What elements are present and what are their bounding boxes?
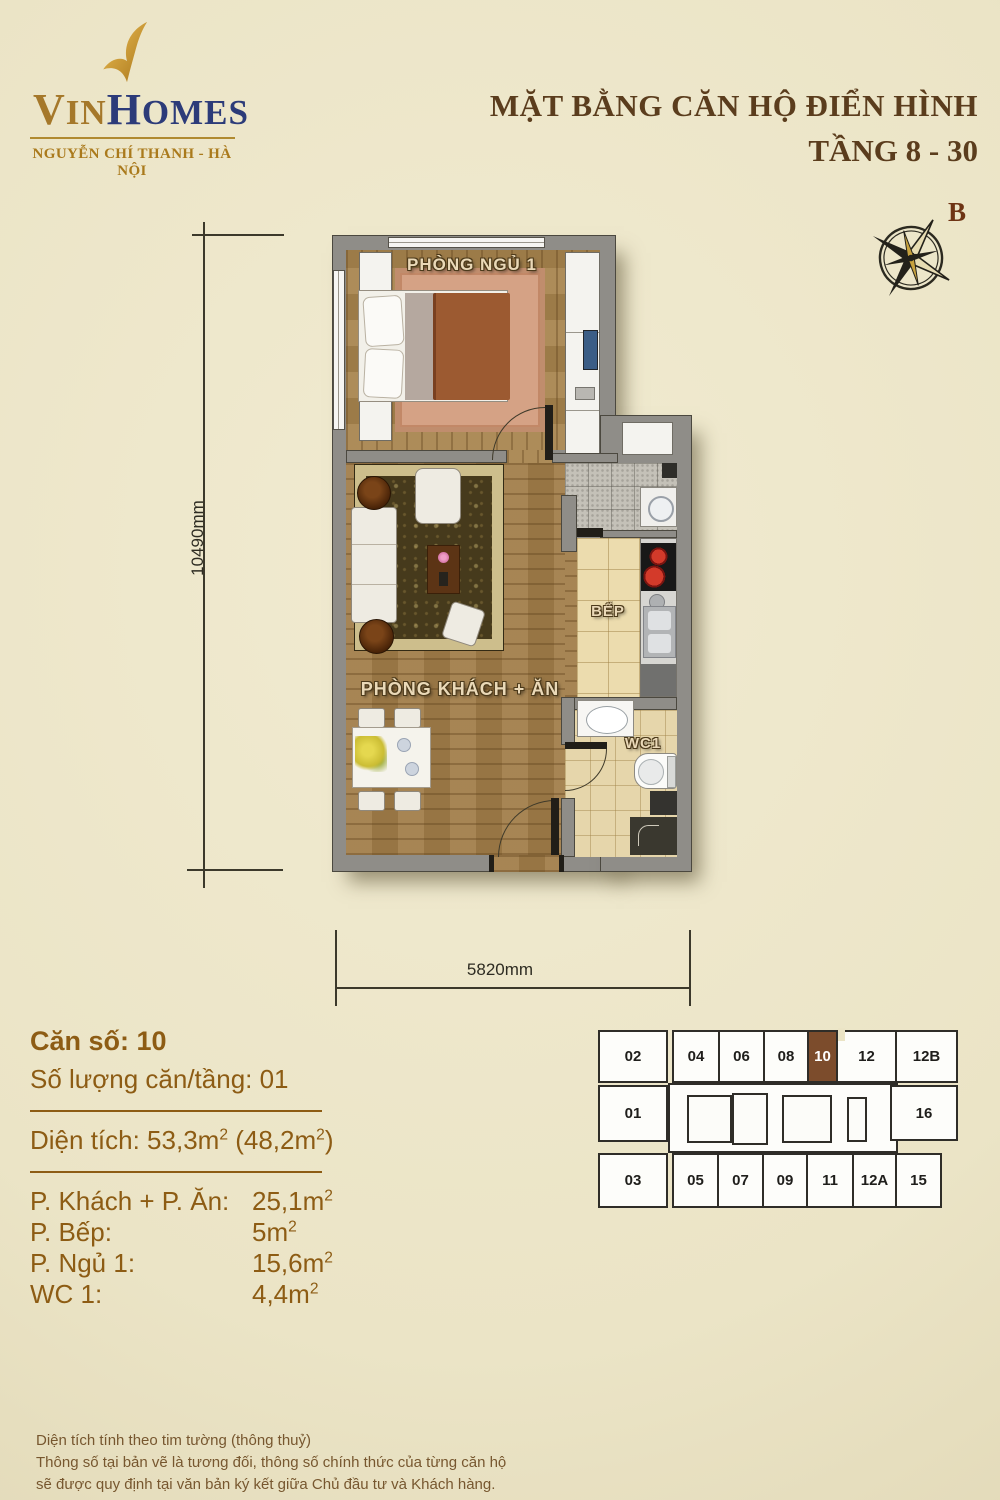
room-area-row: P. Khách + P. Ăn: 25,1m2 — [30, 1186, 340, 1217]
sink-basin — [648, 634, 671, 653]
divider — [30, 1110, 322, 1112]
floor-key-plan: 02 04 06 08 10 12 12B 01 16 03 05 07 09 … — [598, 1028, 960, 1210]
utility-fixture — [662, 463, 677, 478]
room-area-value: 15,6m2 — [252, 1248, 333, 1279]
dining-chair — [394, 791, 421, 811]
dimension-tick — [335, 930, 337, 1006]
room-area-label: P. Khách + P. Ăn: — [30, 1186, 229, 1216]
toilet-tank — [667, 756, 676, 788]
brand-wordmark: VINHOMES — [26, 84, 256, 135]
dining-chair — [358, 708, 385, 728]
kitchen-door — [577, 528, 603, 537]
brand-bird-icon — [95, 20, 159, 84]
keyplan-unit-12B: 12B — [895, 1030, 958, 1083]
disclaimer: Diện tích tính theo tim tường (thông thu… — [36, 1430, 656, 1495]
room-area-row: P. Bếp: 5m2 — [30, 1217, 340, 1248]
entry-door — [551, 798, 559, 855]
value-sup: 2 — [310, 1280, 319, 1297]
brand-part: V — [33, 85, 66, 134]
brand-part: OMES — [142, 93, 249, 132]
disclaimer-line: Diện tích tính theo tim tường (thông thu… — [36, 1430, 656, 1452]
compass-icon — [863, 210, 959, 306]
remote — [439, 572, 448, 586]
pillow — [362, 295, 404, 348]
wc-cabinet — [650, 791, 677, 815]
elevator-core — [847, 1097, 867, 1142]
wall — [600, 530, 677, 538]
brand-tagline: NGUYỄN CHÍ THANH - HÀ NỘI — [18, 146, 246, 180]
title-line-2: TẦNG 8 - 30 — [458, 133, 978, 169]
room-label-bedroom: PHÒNG NGỦ 1 — [392, 255, 552, 275]
value-text: 15,6m — [252, 1248, 324, 1278]
keyplan-notch — [838, 1028, 845, 1041]
washer-drum — [648, 496, 674, 522]
elevator-core — [732, 1093, 768, 1145]
keyplan-unit-12: 12 — [836, 1030, 897, 1083]
wall — [552, 453, 618, 463]
brand-part: IN — [66, 93, 107, 132]
sofa — [351, 507, 397, 623]
dimension-label-width: 5820mm — [420, 960, 580, 980]
keyplan-unit-01: 01 — [598, 1085, 668, 1142]
wall — [346, 450, 507, 463]
keyplan-unit-06: 06 — [718, 1030, 765, 1083]
disclaimer-line: sẽ được quy định tại văn bản ký kết giữa… — [36, 1474, 656, 1496]
units-per-floor: Số lượng căn/tầng: 01 — [30, 1064, 340, 1095]
door-jamb — [489, 855, 494, 872]
dimension-tick — [689, 930, 691, 1006]
value-sup: 2 — [324, 1249, 333, 1266]
elevator-core — [687, 1095, 732, 1143]
toilet-bowl — [638, 759, 664, 785]
dining-chair — [358, 791, 385, 811]
wall — [561, 495, 577, 552]
shower-hose-icon — [638, 825, 659, 846]
page-title: MẶT BẰNG CĂN HỘ ĐIỂN HÌNH TẦNG 8 - 30 — [458, 88, 978, 169]
brand-part: H — [107, 85, 142, 134]
room-area-value: 4,4m2 — [252, 1279, 319, 1310]
room-area-value: 5m2 — [252, 1217, 297, 1248]
value-text: 5m — [252, 1217, 288, 1247]
area-text: (48,2m — [228, 1125, 316, 1155]
window — [333, 270, 345, 430]
area-text: ) — [325, 1125, 334, 1155]
value-text: 25,1m — [252, 1186, 324, 1216]
kitchen-opening — [565, 552, 577, 697]
flyer-page: VINHOMES NGUYỄN CHÍ THANH - HÀ NỘI MẶT B… — [0, 0, 1000, 1500]
keyplan-unit-08: 08 — [763, 1030, 809, 1083]
flower-decor — [438, 552, 449, 563]
brand-divider — [30, 137, 235, 139]
flower-decor — [355, 736, 387, 772]
keyplan-unit-09: 09 — [762, 1153, 808, 1208]
toilet — [634, 753, 677, 789]
keyplan-unit-10-highlighted: 10 — [807, 1030, 838, 1083]
coffee-table — [427, 545, 460, 594]
unit-info: Căn số: 10 Số lượng căn/tầng: 01 Diện tí… — [30, 1026, 340, 1310]
sink-basin — [648, 611, 671, 630]
keyplan-unit-11: 11 — [806, 1153, 854, 1208]
kitchen-cabinet — [641, 664, 676, 696]
washing-machine — [640, 487, 677, 527]
wc-sink — [586, 706, 628, 734]
side-table — [357, 476, 391, 510]
plate — [405, 762, 419, 776]
wc-vanity — [577, 700, 634, 737]
kitchen-sink — [643, 606, 676, 658]
room-area-label: P. Ngủ 1: — [30, 1248, 135, 1278]
dimension-line-horizontal — [336, 987, 690, 989]
room-label-kitchen: BẾP — [578, 603, 638, 620]
room-area-row: P. Ngủ 1: 15,6m2 — [30, 1248, 340, 1279]
room-label-wc: WC1 — [612, 735, 674, 752]
value-sup: 2 — [324, 1187, 333, 1204]
elevator-core — [782, 1095, 832, 1143]
door-jamb — [559, 855, 564, 872]
dining-table — [352, 727, 431, 788]
cabinet — [622, 422, 673, 455]
value-sup: 2 — [288, 1218, 297, 1235]
keyplan-unit-12A: 12A — [852, 1153, 897, 1208]
dimension-tick — [187, 869, 283, 871]
side-table — [359, 619, 394, 654]
floor-plan: PHÒNG NGỦ 1 PHÒNG KHÁCH + ĂN — [332, 235, 694, 875]
bed — [358, 290, 508, 402]
room-label-living: PHÒNG KHÁCH + ĂN — [360, 679, 560, 700]
keyplan-unit-15: 15 — [895, 1153, 942, 1208]
keyplan-unit-04: 04 — [672, 1030, 720, 1083]
room-area-value: 25,1m2 — [252, 1186, 333, 1217]
value-text: 4,4m — [252, 1279, 310, 1309]
shower-area — [630, 817, 677, 855]
window — [388, 237, 545, 248]
keyplan-unit-05: 05 — [672, 1153, 719, 1208]
area-text: Diện tích: 53,3m — [30, 1125, 219, 1155]
cabinet — [575, 387, 595, 400]
dimension-tick — [192, 234, 284, 236]
area-sup: 2 — [219, 1126, 228, 1143]
divider — [30, 1171, 322, 1173]
wall — [561, 697, 575, 745]
keyplan-notch — [668, 1186, 672, 1208]
entry-threshold — [493, 855, 563, 872]
armchair — [415, 468, 461, 524]
bed-blanket — [433, 293, 510, 400]
stove — [641, 543, 676, 591]
room-area-label: P. Bếp: — [30, 1217, 112, 1247]
unit-number: Căn số: 10 — [30, 1026, 340, 1057]
bedroom-door — [545, 405, 553, 460]
disclaimer-line: Thông số tại bản vẽ là tương đối, thông … — [36, 1452, 656, 1474]
keyplan-unit-02: 02 — [598, 1030, 668, 1083]
keyplan-unit-16: 16 — [890, 1085, 958, 1141]
title-line-1: MẶT BẰNG CĂN HỘ ĐIỂN HÌNH — [458, 88, 978, 124]
keyplan-unit-07: 07 — [717, 1153, 764, 1208]
dimension-label-height: 10490mm — [188, 453, 208, 623]
dining-chair — [394, 708, 421, 728]
room-area-label: WC 1: — [30, 1279, 102, 1309]
kitchen-counter — [640, 538, 677, 697]
wall — [561, 798, 575, 857]
room-area-row: WC 1: 4,4m2 — [30, 1279, 340, 1310]
tv-unit — [583, 330, 598, 370]
keyplan-unit-03: 03 — [598, 1153, 668, 1208]
wc-door — [565, 742, 607, 749]
total-area: Diện tích: 53,3m2 (48,2m2) — [30, 1125, 340, 1156]
area-sup: 2 — [316, 1126, 325, 1143]
plate — [397, 738, 411, 752]
pillow — [363, 348, 405, 399]
